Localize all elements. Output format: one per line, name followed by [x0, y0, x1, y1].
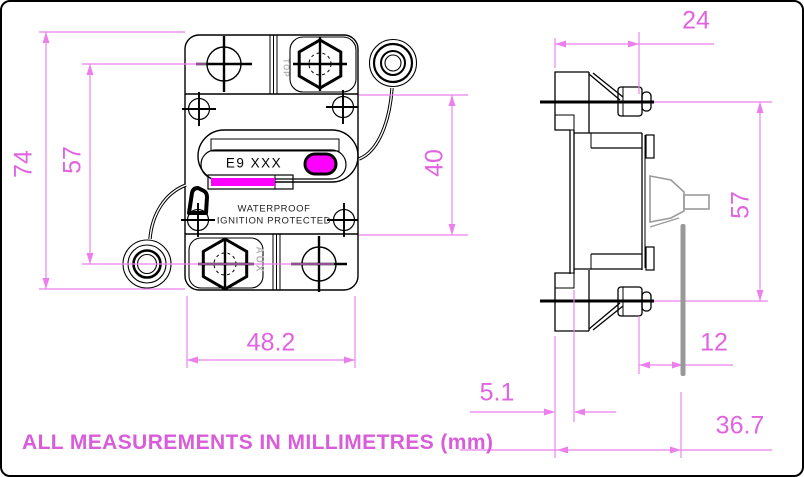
- side-body: [570, 130, 654, 274]
- panel-line: [681, 224, 686, 376]
- dimension-40: [359, 95, 468, 235]
- plate-screw: [327, 203, 358, 237]
- top-flange-and-stud: [540, 72, 654, 133]
- lanyard-cable-right: [359, 40, 417, 160]
- dimension-label-overall-depth: 36.7: [716, 412, 765, 441]
- lanyard-cable-left: [123, 185, 186, 288]
- dimension-label-stud-past-panel: 12: [700, 329, 728, 358]
- dimension-label-overall-height: 74: [10, 150, 39, 178]
- aux-marking: AUX: [254, 246, 265, 273]
- plate-screw: [181, 203, 215, 237]
- waterproof-marking: WATERPROOF: [237, 204, 310, 215]
- dimension-label-stud-spacing: 57: [727, 191, 756, 219]
- bottom-flange-and-stud: [540, 270, 654, 331]
- measurements-note: ALL MEASUREMENTS IN MILLIMETRES (mm): [22, 431, 493, 455]
- dimension-label-overall-width: 48.2: [247, 329, 296, 358]
- dimension-label-plate-height: 40: [421, 149, 450, 177]
- reset-button: [305, 154, 336, 174]
- technical-drawing-canvas: 74 57 40 48.2 24 57 12 5.1 36.7 E9 XXX W…: [0, 0, 804, 477]
- dimension-label-hole-spacing: 57: [59, 146, 88, 174]
- plate-screw: [326, 90, 358, 124]
- cap-rings: [370, 40, 417, 87]
- device-model-label: E9 XXX: [226, 156, 282, 171]
- ignition-protected-marking: IGNITION PROTECTED: [217, 216, 331, 227]
- dimension-label-flange-thickness: 5.1: [480, 379, 515, 408]
- plate-screw: [182, 92, 216, 126]
- drawing-line-art: [2, 2, 804, 477]
- switch-lever: [650, 176, 709, 227]
- top-orientation-marking: TOP: [282, 58, 291, 77]
- dimension-24: [555, 32, 714, 94]
- hex-bolt-top-icon: [290, 37, 356, 92]
- dimension-label-top-depth: 24: [682, 7, 710, 36]
- top-divider: [270, 35, 277, 94]
- bottom-divider: [273, 234, 280, 290]
